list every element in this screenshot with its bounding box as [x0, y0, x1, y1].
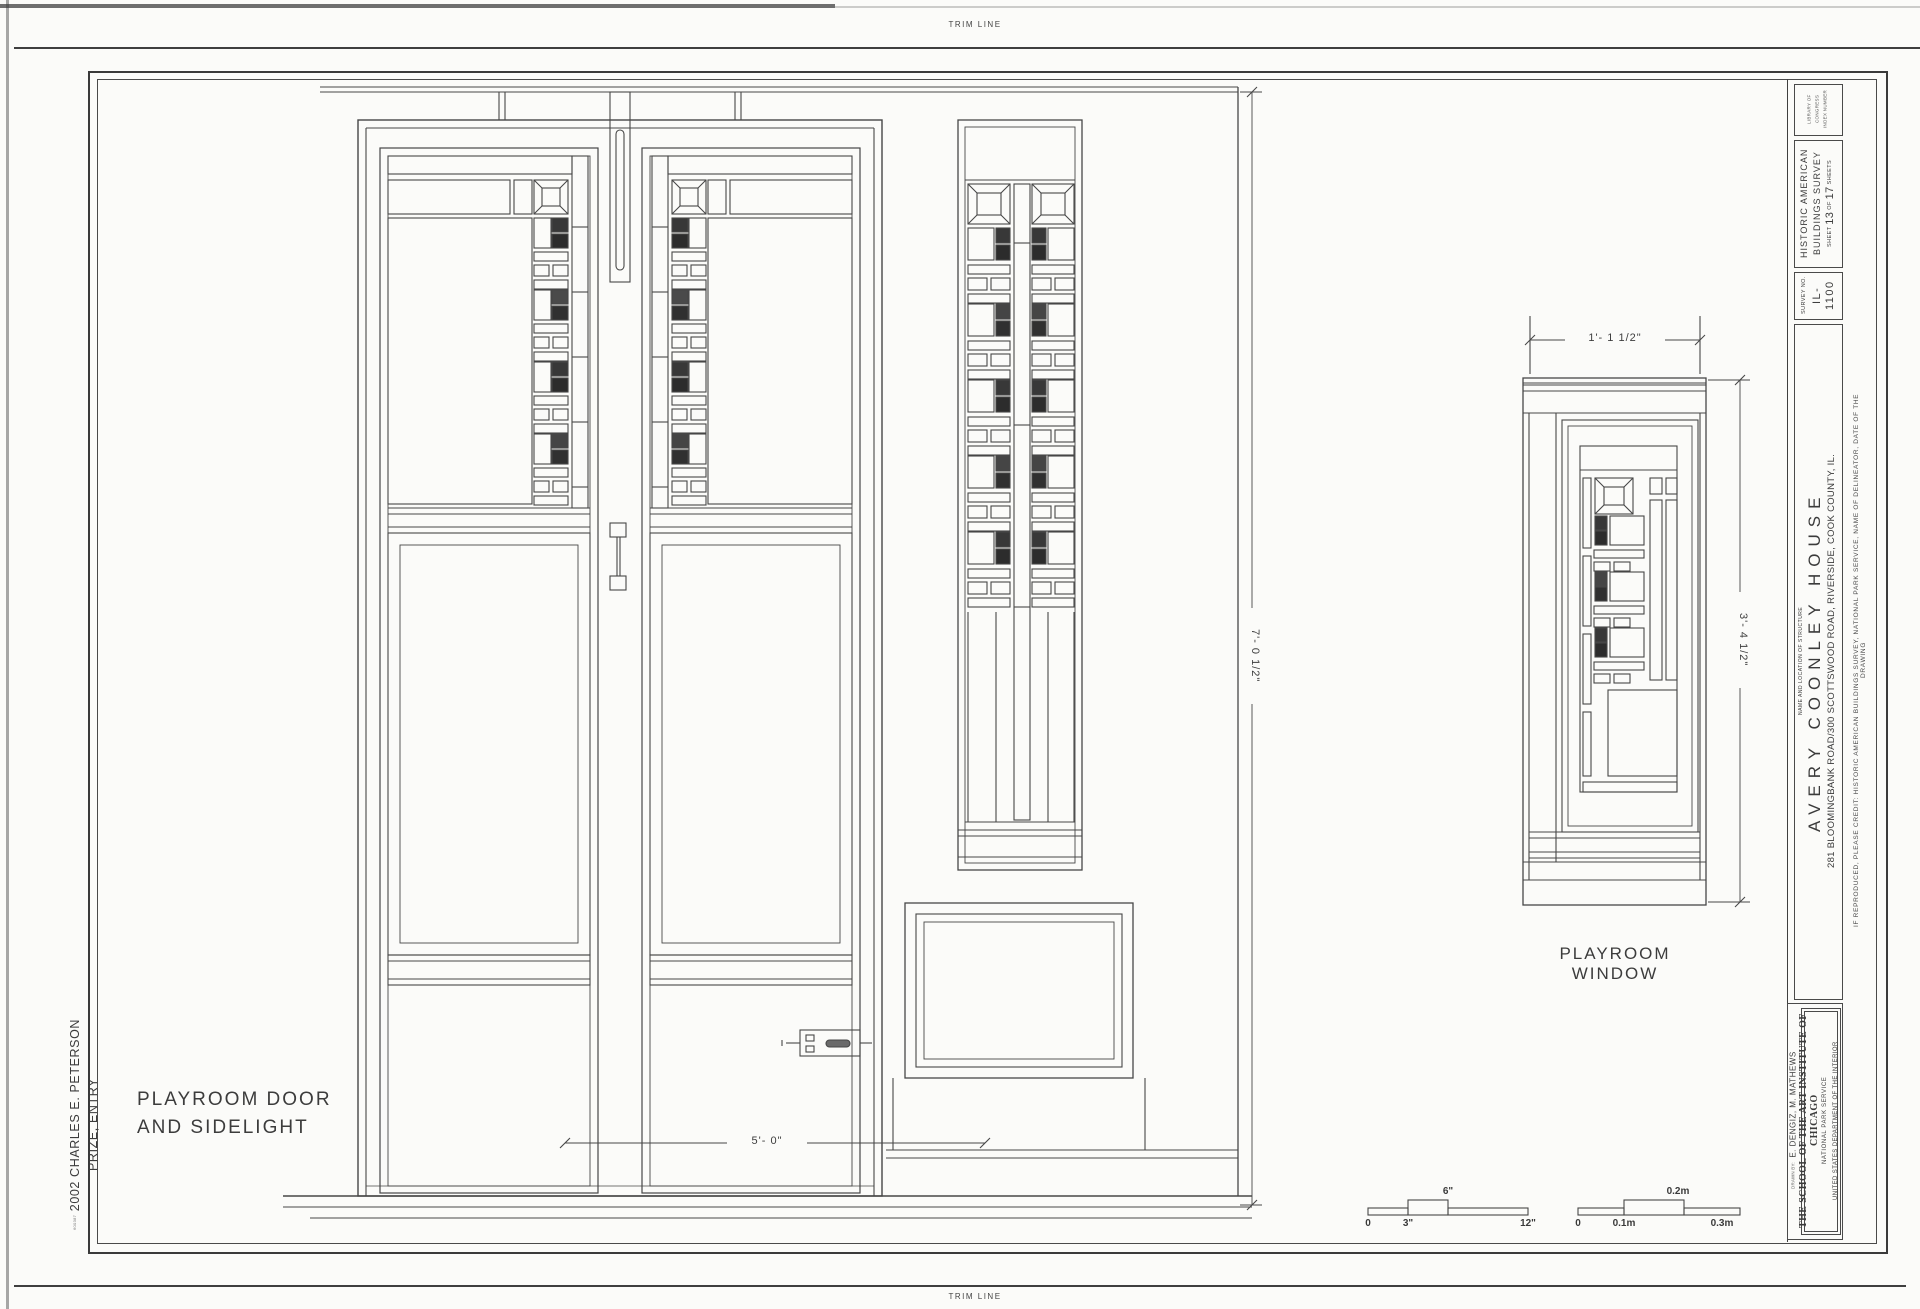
of-word: OF — [1827, 201, 1833, 209]
floor-steps — [283, 1196, 1252, 1218]
titleblock-name-text: NAME AND LOCATION OF STRUCTURE AVERY COO… — [1794, 324, 1841, 998]
wall-and-head-lines — [320, 87, 1238, 1196]
loc-label-2: INDEX NUMBER — [1822, 84, 1830, 134]
scale-met-03: 0.3m — [1702, 1218, 1742, 1229]
sidelight-right-ornament — [1032, 228, 1074, 607]
right-door-leaf — [642, 148, 860, 1193]
right-door-ornament-strip — [672, 218, 706, 505]
door-pull-handle — [610, 523, 626, 590]
door-width-dim-text: 5'- 0" — [727, 1135, 807, 1147]
loc-label-1: LIBRARY OF CONGRESS — [1806, 84, 1822, 134]
sheets-word: SHEETS — [1827, 159, 1833, 183]
door-label: PLAYROOM DOOR AND SIDELIGHT — [137, 1086, 332, 1142]
name-label: NAME AND LOCATION OF STRUCTURE — [1797, 324, 1805, 998]
window-ornament — [1583, 478, 1677, 792]
habs-line1: HISTORIC AMERICAN — [1798, 140, 1811, 266]
agency-name: NATIONAL PARK SERVICE — [1820, 1008, 1831, 1233]
department-name: UNITED STATES DEPARTMENT OF THE INTERIOR — [1831, 1008, 1842, 1233]
window-width-dimension — [1525, 316, 1705, 374]
school-name: THE SCHOOL OF THE ART INSTITUTE OF CHICA… — [1798, 1008, 1820, 1233]
titleblock-habs-text: HISTORIC AMERICAN BUILDINGS SURVEY SHEET… — [1794, 140, 1841, 266]
sidelight-muntins — [965, 612, 1075, 822]
right-door-jewel — [672, 180, 706, 214]
playroom-window-detail — [1523, 378, 1706, 905]
survey-no: IL-1100 — [1811, 272, 1837, 318]
door-label-line2: AND SIDELIGHT — [137, 1114, 332, 1142]
scale-met-02: 0.2m — [1658, 1186, 1698, 1197]
drawn-by-names: E. DENGIZ, M. MATHEWS — [1789, 1052, 1798, 1158]
window-height-dim-text: 3'- 4 1/2" — [1731, 592, 1749, 688]
scale-met-01: 0.1m — [1604, 1218, 1644, 1229]
door-label-line1: PLAYROOM DOOR — [137, 1086, 332, 1114]
credit-line: IF REPRODUCED, PLEASE CREDIT: HISTORIC A… — [1847, 390, 1873, 930]
sheet-word: SHEET — [1827, 226, 1833, 246]
door-height-dim-text: 7'- 0 1/2" — [1243, 608, 1261, 704]
scale-imp-3: 3" — [1388, 1218, 1428, 1229]
sheet-total: 17 — [1824, 186, 1836, 199]
structure-name: AVERY COONLEY HOUSE — [1805, 324, 1825, 998]
scale-imp-0: 0 — [1348, 1218, 1388, 1229]
window-label: PLAYROOM WINDOW — [1520, 944, 1710, 984]
credit-line-text: IF REPRODUCED, PLEASE CREDIT: HISTORIC A… — [1853, 390, 1867, 930]
door-latch — [782, 1030, 872, 1056]
titleblock-loc-text: LIBRARY OF CONGRESS INDEX NUMBER — [1794, 84, 1841, 134]
survey-label: SURVEY NO. — [1798, 272, 1811, 318]
sidelight-base-cabinet — [886, 903, 1238, 1158]
habs-line2: BUILDINGS SURVEY — [1811, 140, 1824, 266]
sidelight-jewels — [968, 184, 1074, 224]
scale-imp-6: 6" — [1428, 1186, 1468, 1197]
sidelight-left-ornament — [968, 228, 1010, 607]
left-door-ornament-strip — [534, 218, 568, 505]
door-frame — [358, 120, 882, 1196]
window-width-dim-text: 1'- 1 1/2" — [1565, 332, 1665, 344]
scale-met-0: 0 — [1558, 1218, 1598, 1229]
sidelight — [958, 120, 1082, 870]
scale-bar-imperial — [1368, 1200, 1528, 1215]
sheet-no: 13 — [1824, 211, 1836, 224]
habs-sheet-line: SHEET 13 OF 17 SHEETS — [1824, 140, 1837, 266]
scale-bar-metric — [1578, 1200, 1740, 1215]
school-text: THE SCHOOL OF THE ART INSTITUTE OF CHICA… — [1801, 1008, 1839, 1233]
structure-address: 281 BLOOMINGBANK ROAD/300 SCOTTSWOOD ROA… — [1825, 324, 1838, 998]
window-jewel — [1595, 478, 1633, 514]
drawn-by-label: DRAWN BY: — [1791, 1162, 1796, 1189]
scale-imp-12: 12" — [1508, 1218, 1548, 1229]
titleblock-survey-text: SURVEY NO. IL-1100 — [1794, 272, 1841, 318]
left-door-leaf — [380, 148, 598, 1193]
left-door-jewel — [534, 180, 568, 214]
